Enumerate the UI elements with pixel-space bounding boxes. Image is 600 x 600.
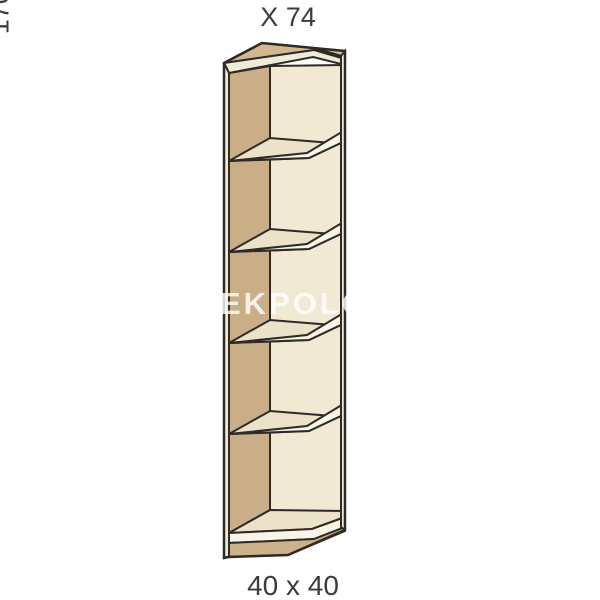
footprint-dimension-label: 40 x 40 [193, 572, 393, 600]
product-diagram: EKPOLO X 74 170.4 40 x 40 [0, 0, 600, 600]
model-code-label: X 74 [188, 4, 388, 31]
height-dimension-text: 170.4 [0, 0, 16, 34]
watermark: EKPOLO [220, 286, 369, 322]
